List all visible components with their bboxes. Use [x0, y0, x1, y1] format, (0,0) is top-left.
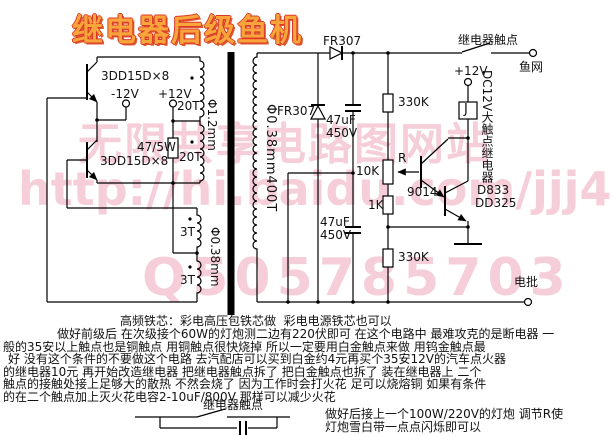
label-phi-primary: Φ1.2mm	[205, 99, 218, 151]
potentiometer-10k	[383, 160, 393, 184]
page-title: 继电器后级鱼机	[72, 5, 303, 50]
junction-dots	[95, 51, 470, 304]
label-330k-top: 330K	[398, 96, 429, 109]
label-q2: 3DD15D×8	[100, 155, 168, 168]
label-r47: 47/5W	[137, 141, 176, 154]
label-probe: 电批	[514, 276, 538, 289]
label-20t-b: 20T	[179, 151, 202, 164]
label-20t-a: 20T	[177, 100, 200, 113]
relay-coil-box	[459, 102, 477, 119]
label-relay-contact-top: 继电器触点	[458, 34, 518, 47]
label-neg12v: -12V	[111, 88, 139, 101]
label-q4-dd325: DD325	[475, 197, 516, 210]
label-c2: 47uF 450V	[320, 216, 351, 242]
label-relay-j: J	[464, 103, 468, 116]
plus12v-terminal	[465, 79, 472, 86]
transformer-core	[228, 52, 235, 315]
secondary-winding	[253, 53, 257, 302]
rectifier-section	[257, 43, 537, 306]
label-c1: 47uF 450V	[326, 114, 357, 140]
label-pot-10k: 10K	[356, 165, 379, 178]
label-d1: FR307	[323, 35, 361, 48]
schematic-page: 无限共享电路图网站 http://hi.baidu.com/jjj4 Q5057…	[0, 0, 614, 436]
label-fishnet: 鱼网	[519, 61, 543, 74]
label-relay-desc: DC12V大触点继电器	[480, 70, 493, 183]
label-q3-9014: 9014	[407, 186, 438, 199]
label-1k: 1K	[368, 199, 384, 212]
cap-47uf-top	[345, 105, 361, 111]
label-d2: FR307	[277, 105, 315, 118]
resistor-330k-bottom	[383, 249, 393, 267]
relay-driver	[383, 53, 482, 302]
label-q1: 3DD15D×8	[101, 70, 169, 83]
snubber-detail	[135, 409, 290, 435]
label-phi-secondary: Φ0.38mm400T	[264, 104, 277, 212]
fishnet-terminal	[530, 50, 537, 57]
note-line7: 的在二个触点加上灭火花电容2-10uF/800V 那样可以减少火花	[3, 388, 336, 405]
label-pot-r: R	[398, 152, 406, 165]
label-phi-feedback: Φ0.38mm	[208, 227, 221, 287]
label-3t-b: 3T	[180, 274, 195, 287]
probe-terminal	[525, 299, 532, 306]
label-330k-bottom: 330K	[398, 251, 429, 264]
resistor-330k-top	[383, 94, 393, 112]
label-3t-a: 3T	[180, 226, 195, 239]
note-right2: 灯炮雪白带一点点闪烁即可以	[325, 418, 481, 435]
resistor-1k	[383, 196, 393, 214]
diode-fr307-series	[330, 47, 342, 59]
